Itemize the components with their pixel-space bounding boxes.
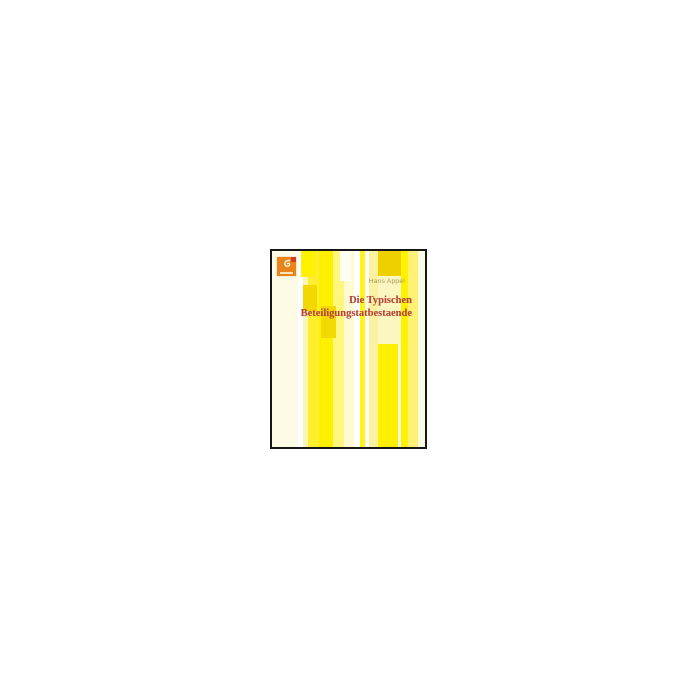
book-title-line2: Beteiligungstatbestaende: [272, 307, 412, 320]
logo-caption-text: [280, 272, 293, 274]
author-name: Hans Appel: [272, 278, 405, 285]
publisher-logo: [277, 257, 296, 276]
publisher-logo-icon: [280, 259, 293, 270]
book-title: Die Typischen Beteiligungstatbestaende: [272, 294, 412, 320]
book-title-line1: Die Typischen: [272, 294, 412, 307]
cover-block: [301, 251, 315, 277]
product-image-canvas: Hans Appel Die Typischen Beteiligungstat…: [0, 0, 700, 700]
cover-block: [378, 251, 401, 276]
book-cover-image: Hans Appel Die Typischen Beteiligungstat…: [270, 249, 427, 449]
cover-block: [340, 251, 351, 281]
